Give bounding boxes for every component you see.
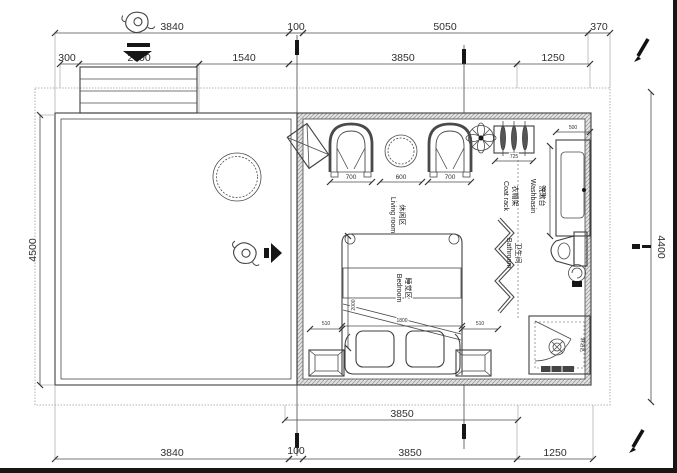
left-room-outer-wall: [55, 113, 297, 385]
dim-label: 510: [322, 321, 331, 327]
floor-plan-page: 3840 100 5050 370 300 2000 1540 3850 125…: [0, 0, 677, 473]
dim-label: 500: [569, 125, 578, 131]
dim-label: 1800: [396, 318, 407, 324]
coat-rack: 725 衣帽架 Coat rack: [494, 121, 534, 211]
person-icon: [121, 8, 155, 36]
shower-label: 淋浴区: [579, 337, 586, 352]
dim-label: 100: [287, 445, 305, 457]
dim-label: 4400: [655, 235, 667, 259]
round-table-large: [213, 153, 261, 201]
person-icon: [230, 241, 263, 266]
washbasin: 500 1000 洗漱台 Washbasin: [529, 125, 590, 236]
dim-label: 2000: [351, 299, 357, 310]
decor-cabinet: [287, 124, 328, 169]
living-room-label: 休闲区 Living room: [389, 197, 407, 233]
floor-drain-icon: [569, 265, 586, 288]
coat-rack-label: 衣帽架 Coat rack: [502, 181, 520, 211]
left-room-inner-wall: [61, 119, 291, 379]
dim-label: 3840: [160, 21, 184, 33]
dim-label: 300: [58, 52, 76, 64]
svg-text:休闲区: 休闲区: [398, 205, 407, 226]
bedroom: 1800 2000 510 510 睡觉区 Bedroom: [309, 234, 498, 376]
page-right-border: [673, 0, 677, 473]
dim-label: 1250: [541, 52, 565, 64]
washbasin-label: 洗漱台 Washbasin: [529, 179, 547, 213]
dim-row-bottom-1: 3850: [285, 408, 518, 420]
dim-label: 1540: [232, 52, 256, 64]
pen-icon: [629, 430, 643, 453]
bathroom: 卫生间 Bathroom: [497, 219, 587, 312]
dim-label: 1250: [543, 447, 567, 459]
toilet: [551, 232, 587, 266]
svg-text:Coat rack: Coat rack: [502, 181, 509, 211]
dim-label: 100: [287, 21, 305, 33]
round-table-small: [385, 135, 417, 167]
grid-lines: [295, 35, 466, 456]
headboard: [345, 334, 460, 374]
dim-row-bottom-2: 3840 100 3850 1250: [55, 445, 593, 459]
nightstand: [309, 350, 344, 376]
nightstand: [456, 350, 491, 376]
pillow: [356, 331, 394, 367]
svg-text:洗漱台: 洗漱台: [538, 186, 547, 207]
shower-grate: [541, 366, 574, 372]
svg-text:Living room: Living room: [389, 197, 396, 233]
dim-label: 370: [590, 21, 608, 33]
svg-text:睡觉区: 睡觉区: [404, 278, 413, 299]
dim-label: 700: [445, 174, 456, 181]
floor-plan-drawing: 3840 100 5050 370 300 2000 1540 3850 125…: [0, 0, 677, 473]
dim-label: 600: [396, 174, 407, 181]
dim-label: 725: [510, 154, 519, 160]
dim-label: 700: [346, 174, 357, 181]
svg-text:衣帽架: 衣帽架: [511, 186, 520, 207]
dim-label: 3850: [391, 52, 415, 64]
entry-arrow-right-icon: [264, 243, 282, 263]
shower: 淋浴区: [529, 316, 590, 374]
dim-label: 510: [476, 321, 485, 327]
armchair: [330, 124, 372, 177]
entry-steps: [80, 67, 197, 113]
living-room: 700 600 700 休闲区 Living room: [287, 123, 496, 233]
dim-label: 4500: [27, 238, 39, 262]
svg-text:Bathroom: Bathroom: [505, 238, 512, 269]
svg-text:Bedroom: Bedroom: [395, 274, 402, 303]
dim-label: 3850: [398, 447, 422, 459]
bathroom-label: 卫生间 Bathroom: [505, 238, 523, 269]
dim-left-side: 4500: [27, 115, 40, 385]
svg-text:卫生间: 卫生间: [514, 243, 523, 264]
armchair: [429, 124, 471, 177]
dim-right-side: 4400: [632, 92, 667, 402]
dim-label: 5050: [433, 21, 457, 33]
pillow: [406, 331, 444, 367]
page-bottom-border: [0, 468, 677, 473]
dim-label: 3850: [390, 408, 414, 420]
pen-icon: [634, 39, 648, 62]
extension-lines: [40, 33, 610, 459]
dim-label: 3840: [160, 447, 184, 459]
svg-text:Washbasin: Washbasin: [529, 179, 536, 213]
